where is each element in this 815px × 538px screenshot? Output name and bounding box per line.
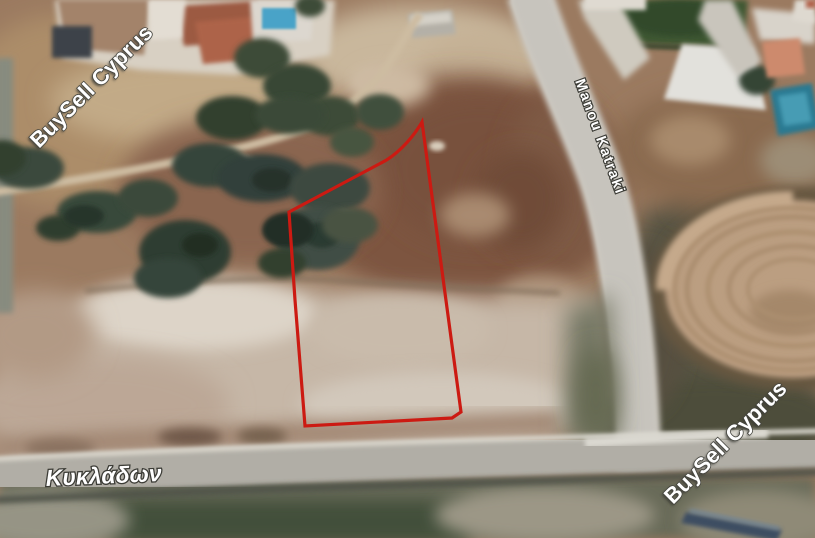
svg-text:Κυκλάδων: Κυκλάδων xyxy=(45,460,162,491)
